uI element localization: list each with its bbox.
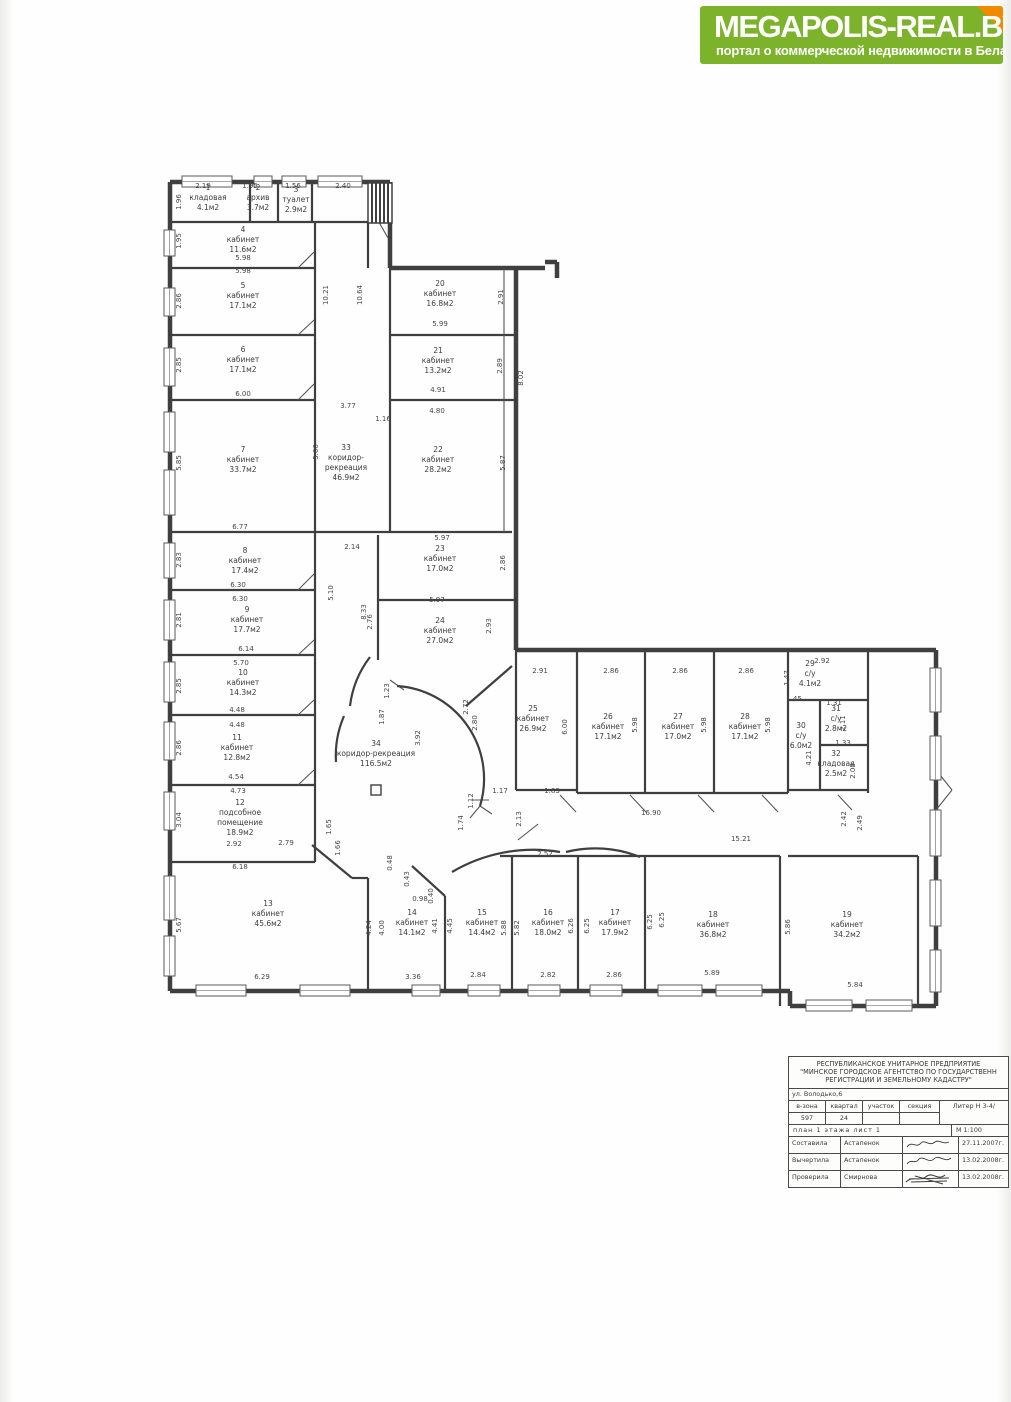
dimension-label: 6.29 <box>254 973 270 981</box>
wall-detail <box>698 795 714 812</box>
wall-inner <box>466 666 512 706</box>
dimension-label: 2.83 <box>175 552 183 568</box>
signature-row-1: СоставилаАстапенок27.11.2007г. <box>789 1137 1008 1154</box>
room-label-27: 27кабинет17.0м2 <box>662 712 695 741</box>
room-label-10: 10кабинет14.3м2 <box>227 668 260 697</box>
cadastre-header-3: участок <box>863 1101 900 1113</box>
dimension-label: 1.23 <box>383 683 391 699</box>
signature-name: Астапенок <box>841 1137 903 1153</box>
room-label-11: 11кабинет12.8м2 <box>221 733 254 762</box>
room-labels-layer: 1кладовая4.1м22архив3.7м23туалет2.9м24ка… <box>189 183 864 939</box>
room-label-6: 6кабинет17.1м2 <box>227 345 260 374</box>
title-block-address: ул. Володько,6 <box>789 1089 1008 1101</box>
walls-layer <box>170 182 952 1006</box>
cadastre-value-4 <box>900 1113 940 1124</box>
cadastre-value-3 <box>863 1113 900 1124</box>
dimension-label: 10.64 <box>356 284 364 305</box>
dimension-label: 2.85 <box>175 357 183 373</box>
room-label-23: 23кабинет17.0м2 <box>424 544 457 573</box>
dimension-label: 2.86 <box>603 667 619 675</box>
dimension-label: 1.87 <box>378 709 386 725</box>
dimension-label: 6.26 <box>567 918 575 934</box>
wall-detail <box>298 574 314 590</box>
dimension-label: 4.41 <box>431 918 439 934</box>
dimension-label: 1.74 <box>457 815 465 831</box>
dimension-label: 5.66 <box>312 444 320 460</box>
title-block-org: РЕСПУБЛИКАНСКОЕ УНИТАРНОЕ ПРЕДПРИЯТИЕ "М… <box>789 1057 1008 1089</box>
dimension-label: 5.84 <box>847 981 863 989</box>
dimension-label: 1.96 <box>175 194 183 210</box>
dimension-label: 2.89 <box>496 358 504 374</box>
room-label-17: 17кабинет17.9м2 <box>599 908 632 937</box>
title-block: РЕСПУБЛИКАНСКОЕ УНИТАРНОЕ ПРЕДПРИЯТИЕ "М… <box>788 1056 1009 1188</box>
plan-sheet-cell: план 1 этажа лист 1 <box>789 1125 952 1136</box>
room-label-34: 34коридор-рекреация116.5м2 <box>337 739 415 768</box>
dimension-label: 3.36 <box>405 973 421 981</box>
signature-date: 13.02.2008г. <box>959 1171 1008 1187</box>
dimension-label: 4.00 <box>378 920 386 936</box>
liter-cell: Литер Н 3-4/ <box>940 1101 1008 1112</box>
wall-detail <box>762 795 778 812</box>
dimension-label: 1.17 <box>492 787 508 795</box>
dimension-label: 1.45 <box>786 695 802 703</box>
dimension-label: 0.48 <box>386 855 394 871</box>
windows-layer <box>164 176 941 1011</box>
dimension-label: 1.33 <box>835 739 851 747</box>
signature-row-2: ВычертилаАстапенок13.02.2008г. <box>789 1154 1008 1171</box>
dimension-labels-layer: 2.191.951.562.401.961.952.862.855.852.83… <box>175 182 864 989</box>
dimension-label: 8.33 <box>360 604 368 620</box>
signature-name: Астапенок <box>841 1154 903 1170</box>
dimension-label: 1.12 <box>467 793 475 809</box>
room-label-12: 12подсобноепомещение18.9м2 <box>217 798 263 837</box>
dimension-label: 4.91 <box>430 386 446 394</box>
wall-detail <box>298 770 314 785</box>
room-label-16: 16кабинет18.0м2 <box>532 908 565 937</box>
dimension-label: 10.21 <box>322 285 330 305</box>
wall-detail <box>560 795 576 812</box>
dimension-label: 6.25 <box>646 914 654 930</box>
dimension-label: 1.83 <box>544 787 560 795</box>
dimension-label: 3.77 <box>340 402 356 410</box>
dimension-label: 6.25 <box>658 912 666 928</box>
dimension-label: 6.30 <box>230 581 246 589</box>
wall-detail <box>298 640 314 655</box>
wall-detail <box>480 806 492 814</box>
dimension-label: 15.21 <box>731 835 751 843</box>
dimension-label: 2.79 <box>278 839 294 847</box>
signature-role: Вычертила <box>789 1154 841 1170</box>
signature-scribble <box>903 1171 959 1187</box>
dimension-label: 0.43 <box>403 871 411 887</box>
room-label-28: 28кабинет17.1м2 <box>729 712 762 741</box>
org-line3: РЕГИСТРАЦИИ И ЗЕМЕЛЬНОМУ КАДАСТРУ" <box>791 1076 1006 1084</box>
dimension-label: 3.04 <box>175 812 183 828</box>
dimension-label: 2.86 <box>606 971 622 979</box>
signature-scribble <box>903 1154 959 1170</box>
dimension-label: 4.73 <box>230 787 246 795</box>
dimension-label: 2.86 <box>499 555 507 571</box>
wall-detail <box>298 384 314 400</box>
dimension-label: 2.93 <box>485 618 493 634</box>
dimension-label: 5.70 <box>233 659 249 667</box>
dimension-label: 2.91 <box>497 289 505 305</box>
dimension-label: 16.90 <box>641 809 661 817</box>
title-block-cadastre-grid: в-зонакварталучастоксекцияЛитер Н 3-4/59… <box>789 1101 1008 1125</box>
dimension-label: 2.80 <box>471 715 479 731</box>
dimension-label: 0.98 <box>412 895 428 903</box>
room-label-18: 18кабинет36.8м2 <box>697 910 730 939</box>
wall-detail <box>390 680 404 690</box>
scanned-floor-plan-page: { "logo": { "title": "MEGAPOLIS-REAL.BY"… <box>0 0 1011 1402</box>
dimension-label: 1.95 <box>242 182 258 190</box>
cadastre-value-2: 24 <box>826 1113 863 1124</box>
dimension-label: 5.89 <box>704 969 720 977</box>
dimension-label: 1.65 <box>325 819 333 835</box>
dimension-label: 4.54 <box>228 773 244 781</box>
room-label-30: 30с/у6.0м2 <box>790 721 813 750</box>
dimension-label: 2.42 <box>840 811 848 827</box>
corridor-arc-wall <box>350 657 370 706</box>
title-block-signature-rows: СоставилаАстапенок27.11.2007г.ВычертилаА… <box>789 1137 1008 1187</box>
dimension-label: 5.97 <box>434 534 450 542</box>
dimension-label: 2.19 <box>195 182 211 190</box>
dimension-label: 6.00 <box>235 390 251 398</box>
room-label-33: 33коридор-рекреация46.9м2 <box>325 443 367 482</box>
dimension-label: 1.31 <box>826 699 842 707</box>
room-label-13: 13кабинет45.6м2 <box>252 899 285 928</box>
cadastre-header-4: секция <box>900 1101 940 1113</box>
dimension-label: 6.30 <box>232 595 248 603</box>
dimension-label: 2.92 <box>814 657 830 665</box>
wall-detail <box>838 795 852 810</box>
dimension-label: 2.82 <box>540 971 556 979</box>
dimension-label: 5.85 <box>175 455 183 471</box>
room-label-25: 25кабинет26.9м2 <box>517 704 550 733</box>
dimension-label: 5.97 <box>429 596 445 604</box>
room-label-8: 8кабинет17.4м2 <box>229 546 262 575</box>
room-label-4: 4кабинет11.6м2 <box>227 225 260 254</box>
dimension-label: 5.98 <box>235 254 251 262</box>
dimension-label: 0.40 <box>427 888 435 904</box>
dimension-label: 5.82 <box>513 920 521 936</box>
dimension-label: 5.98 <box>700 717 708 733</box>
dimension-label: 5.67 <box>175 917 183 933</box>
dimension-label: 6.77 <box>232 523 248 531</box>
column-marker <box>371 785 381 795</box>
dimension-label: 5.87 <box>499 455 507 471</box>
dimension-label: 2.81 <box>175 612 183 628</box>
signature-role: Составила <box>789 1137 841 1153</box>
room-label-26: 26кабинет17.1м2 <box>592 712 625 741</box>
wall-inner <box>312 845 352 878</box>
dimension-label: 2.92 <box>226 840 242 848</box>
room-label-7: 7кабинет33.7м2 <box>227 445 260 474</box>
dimension-label: 2.14 <box>344 543 360 551</box>
dimension-label: 1.95 <box>175 233 183 249</box>
room-label-22: 22кабинет28.2м2 <box>422 445 455 474</box>
signature-name: Смирнова <box>841 1171 903 1187</box>
dimension-label: 2.91 <box>532 667 548 675</box>
dimension-label: 2.72 <box>462 699 470 715</box>
cadastre-header-2: квартал <box>826 1101 863 1113</box>
dimension-label: 5.98 <box>764 717 772 733</box>
dimension-label: 2.08 <box>849 763 857 779</box>
dimension-label: 5.98 <box>631 717 639 733</box>
cadastre-header-1: в-зона <box>789 1101 826 1113</box>
room-label-9: 9кабинет17.7м2 <box>231 605 264 634</box>
dimension-label: 5.98 <box>235 267 251 275</box>
dimension-label: 2.86 <box>672 667 688 675</box>
dimension-label: 5.99 <box>432 320 448 328</box>
org-line1: РЕСПУБЛИКАНСКОЕ УНИТАРНОЕ ПРЕДПРИЯТИЕ <box>791 1060 1006 1068</box>
wall-detail <box>936 790 952 810</box>
title-block-plan-row: план 1 этажа лист 1 М 1:100 <box>789 1125 1008 1137</box>
dimension-label: 4.48 <box>229 706 245 714</box>
signature-scribble <box>903 1137 959 1153</box>
wall-detail <box>298 700 314 715</box>
dimension-label: 4.80 <box>429 407 445 415</box>
dimension-label: 6.14 <box>238 645 254 653</box>
dimension-label: 4.48 <box>229 721 245 729</box>
cadastre-value-1: 597 <box>789 1113 826 1124</box>
wall-detail <box>298 252 314 268</box>
floor-plan-drawing: 1кладовая4.1м22архив3.7м23туалет2.9м24ка… <box>0 0 1011 1402</box>
room-label-14: 14кабинет14.1м2 <box>396 908 429 937</box>
room-label-20: 20кабинет16.8м2 <box>424 279 457 308</box>
dimension-label: 1.47 <box>783 670 791 686</box>
dimension-label: 1.56 <box>285 182 301 190</box>
dimension-label: 5.10 <box>327 585 335 601</box>
corridor-arc-wall <box>397 686 484 806</box>
signature-date: 13.02.2008г. <box>959 1154 1008 1170</box>
dimension-label: 2.85 <box>175 678 183 694</box>
room-label-19: 19кабинет34.2м2 <box>831 910 864 939</box>
signature-role: Проверила <box>789 1171 841 1187</box>
dimension-label: 1.16 <box>375 415 391 423</box>
dimension-label: 2.52 <box>537 850 553 858</box>
dimension-label: 5.88 <box>500 920 508 936</box>
dimension-label: 4.45 <box>446 918 454 934</box>
dimension-label: 1.66 <box>334 840 342 856</box>
dimension-label: 2.86 <box>175 740 183 756</box>
signature-date: 27.11.2007г. <box>959 1137 1008 1153</box>
dimension-label: 3.92 <box>414 730 422 746</box>
dimension-label: 2.84 <box>470 971 486 979</box>
org-line2: "МИНСКОЕ ГОРОДСКОЕ АГЕНТСТВО ПО ГОСУДАРС… <box>791 1068 1006 1076</box>
wall-detail <box>298 320 314 335</box>
dimension-label: 4.21 <box>805 750 813 766</box>
dimension-label: 4.24 <box>365 920 373 936</box>
room-label-15: 15кабинет14.4м2 <box>466 908 499 937</box>
signature-row-3: ПроверилаСмирнова13.02.2008г. <box>789 1171 1008 1187</box>
room-label-24: 24кабинет27.0м2 <box>424 616 457 645</box>
dimension-label: 2.13 <box>515 811 523 827</box>
room-label-5: 5кабинет17.1м2 <box>227 281 260 310</box>
scale-cell: М 1:100 <box>952 1125 1008 1136</box>
dimension-label: 5.86 <box>784 919 792 935</box>
dimension-label: 2.40 <box>335 182 351 190</box>
dimension-label: 8.02 <box>517 370 525 386</box>
dimension-label: 2.49 <box>856 815 864 831</box>
dimension-label: 2.86 <box>175 293 183 309</box>
dimension-label: 2.86 <box>738 667 754 675</box>
dimension-label: 6.18 <box>232 863 248 871</box>
dimension-label: 2.11 <box>839 715 847 731</box>
dimension-label: 6.25 <box>583 918 591 934</box>
room-label-21: 21кабинет13.2м2 <box>422 346 455 375</box>
dimension-label: 6.00 <box>561 719 569 735</box>
